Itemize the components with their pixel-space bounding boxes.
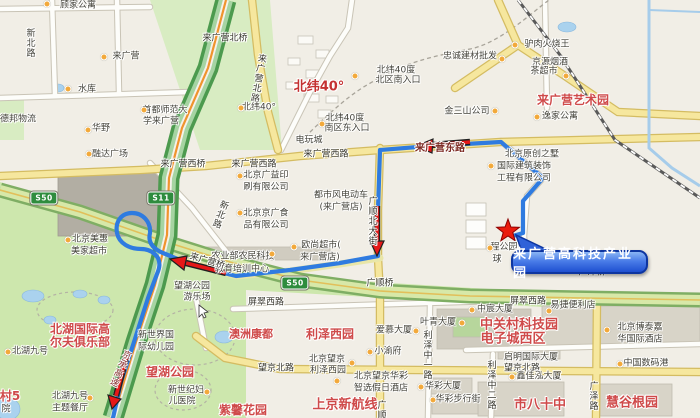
map-label: (来广营店) (319, 204, 362, 213)
map-label: 北湖九号 (12, 348, 48, 357)
map-label: 电子城西区 (480, 333, 545, 346)
map-label: 国际建筑装饰 (497, 163, 551, 172)
map-label: 广顺北大街 (367, 196, 376, 246)
poi-dot (487, 245, 494, 252)
map-label: 都市风电动车 (314, 192, 368, 201)
map-label: 北京京广食 (243, 210, 288, 219)
map-label: 来广营 (112, 53, 139, 62)
map-label: 村5 (0, 390, 20, 402)
map-label: 华彩步行街 (435, 396, 480, 405)
poi-dot (334, 378, 341, 385)
map-label: 华国际酒店 (617, 336, 662, 345)
map-label: 北纬40° (242, 104, 276, 113)
map-label: 中宸大厦 (477, 306, 513, 315)
poi-dot (65, 86, 72, 93)
map-label: 来广营西桥 (160, 161, 205, 170)
map-label: 金三山公司 (444, 108, 489, 117)
map-label: 广顺 (376, 400, 385, 418)
map-label: 水库 (78, 86, 96, 95)
poi-dot (204, 389, 211, 396)
map-label: 融达广场 (92, 151, 128, 160)
map-label: 新北路 (25, 28, 34, 58)
map-label: 广泽路 (588, 381, 597, 411)
map-label: 主题餐厅 (52, 405, 88, 414)
map-label: 鑫佳泓大厦 (516, 373, 561, 382)
map-label: 欧尚超市( (301, 242, 341, 251)
map-label: 儿医院 (168, 398, 195, 407)
map-label: 北湖国际高 (50, 323, 110, 335)
map-label: 小渝府 (374, 348, 401, 357)
route-shield: S50 (30, 192, 57, 205)
map-label: 院 (1, 406, 10, 415)
poi-dot (237, 210, 244, 217)
map-label: 来广营东路 (415, 144, 465, 154)
map-label: 北京望京 (309, 356, 345, 365)
poi-dot (349, 360, 356, 367)
map-label: 北纬40度 (377, 67, 415, 76)
poi-dot (5, 349, 12, 356)
map-label: 上京新航线 (312, 399, 377, 412)
poi-dot (141, 107, 148, 114)
map-label: 启明国际大厦 (504, 354, 558, 363)
map-label: 忠诚建材批发 (443, 53, 497, 62)
poi-dot (86, 151, 93, 158)
map-label: 德邦物流 (0, 116, 36, 125)
map-label: 学来广营 (143, 118, 179, 127)
route-shield: S11 (147, 192, 174, 205)
map-label: 北纬40度 (326, 115, 364, 124)
map-label: 来广营北路 (248, 53, 266, 104)
poi-dot (469, 307, 476, 314)
map-label: 广顺桥 (366, 280, 393, 289)
map-label: 利泽中二路 (486, 360, 495, 410)
map-labels-layer: 顾家公寓新北路来广营水库德邦物流华野首都师范大学来广营来广营北桥来广营北路北纬4… (0, 0, 700, 418)
map-label: 易捷便利店 (550, 302, 595, 311)
map-label: 来广营西路 (303, 151, 348, 160)
map-label: 茶超市 (530, 68, 557, 77)
map-label: 新世纪妇 (168, 387, 204, 396)
poi-dot (492, 108, 499, 115)
map-label: 球 (492, 256, 501, 265)
poi-dot (291, 244, 298, 251)
map-label: 顾家公寓 (60, 2, 96, 11)
map-label: 中关村科技园 (480, 319, 558, 332)
map-label: 驴肉火烧王 (524, 41, 569, 50)
map-label: 北区南入口 (375, 77, 420, 86)
map-label: 品有限公司 (243, 222, 288, 231)
poi-dot (617, 361, 624, 368)
poi-dot (65, 237, 72, 244)
map-label: 尔夫俱乐部 (50, 336, 110, 348)
poi-dot (534, 114, 541, 121)
poi-dot (488, 163, 495, 170)
map-label: 美家超市 (71, 248, 107, 257)
map-label: 来广营西路 (231, 161, 276, 170)
poi-dot (319, 121, 326, 128)
map-label: 北京博泰嘉 (617, 324, 662, 333)
map-label: 逸家公寓 (542, 113, 578, 122)
map-label: 华野 (92, 125, 110, 134)
map-label: 利泽西园 (310, 367, 346, 376)
map-label: 望京北路 (258, 365, 294, 374)
poi-dot (509, 374, 516, 381)
map-label: 北京原创之墅 (505, 151, 559, 160)
poi-dot (604, 327, 611, 334)
map-label: 来广营北桥 (202, 35, 247, 44)
poi-dot (546, 308, 553, 315)
route-shield: S50 (281, 277, 308, 290)
map-label: 来广营艺术园 (537, 94, 609, 106)
map-label: 北湖九号 (52, 393, 88, 402)
map-label: 市八十中 (514, 399, 566, 412)
poi-dot (87, 395, 94, 402)
poi-dot (101, 54, 108, 61)
poi-dot (352, 73, 359, 80)
poi-dot (44, 1, 51, 8)
poi-dot (367, 349, 374, 356)
poi-dot (459, 320, 466, 327)
map-label: 华彩大厦 (425, 383, 461, 392)
map-label: 叶青大厦 (420, 319, 456, 328)
map-label: 澳洲康都 (229, 329, 273, 340)
poi-dot (238, 105, 245, 112)
map-label: 北京美惠 (72, 236, 108, 245)
map-label: 智选假日酒店 (354, 385, 408, 394)
map-label: 望湖公园 (146, 366, 194, 378)
map-label: 紫馨花园 (219, 404, 267, 416)
map-label: 中国数码港 (623, 360, 668, 369)
map-canvas[interactable]: 顾家公寓新北路来广营水库德邦物流华野首都师范大学来广营来广营北桥来广营北路北纬4… (0, 0, 700, 418)
map-label: 工程有限公司 (497, 175, 551, 184)
poi-dot (269, 251, 276, 258)
map-label: 新北路 (210, 198, 229, 229)
poi-dot (563, 73, 570, 80)
poi-dot (237, 173, 244, 180)
map-label: 望湖公园 (174, 283, 210, 292)
map-label: 利泽中一路 (422, 330, 431, 380)
poi-dot (418, 384, 425, 391)
map-label: 北京广益印 (243, 172, 288, 181)
map-label: 利泽西园 (306, 328, 354, 340)
map-label: 北京望京华彩 (354, 373, 408, 382)
destination-callout[interactable]: 来广营高科技产业园 (511, 250, 648, 274)
map-label: 屏翠西路 (510, 298, 546, 307)
poi-dot (499, 56, 506, 63)
map-label: 屏翠西路 (248, 299, 284, 308)
map-label: 新世界国 (138, 332, 174, 341)
poi-dot (85, 127, 92, 134)
map-label: 南区东入口 (324, 125, 369, 134)
map-label: 北纬40° (294, 81, 345, 94)
poi-dot (430, 397, 437, 404)
map-label: 刷有限公司 (243, 184, 288, 193)
poi-dot (413, 328, 420, 335)
map-label: 游乐场 (183, 294, 210, 303)
map-label: 际幼儿园 (138, 344, 174, 353)
poi-dot (512, 42, 519, 49)
map-label: 来广营店) (300, 254, 340, 263)
map-label: 慧谷根园 (606, 397, 658, 410)
map-label: 爱慕大厦 (376, 327, 412, 336)
map-label: 电玩城 (295, 137, 322, 146)
map-label: 京承高速 (107, 348, 131, 388)
map-label: 首都师范大 (142, 107, 187, 116)
